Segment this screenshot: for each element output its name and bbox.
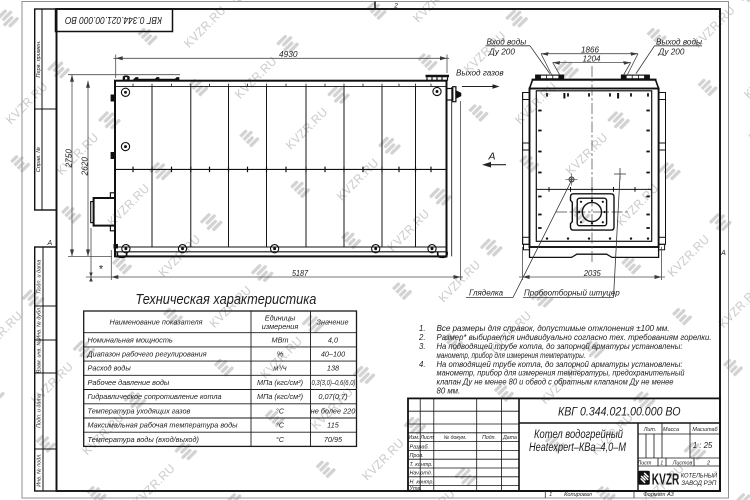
svg-text:Техническая характеристика: Техническая характеристика (135, 292, 316, 308)
svg-text:МПа (кгс/см²): МПа (кгс/см²) (257, 378, 303, 387)
svg-text:КОТЕЛЬНЫЙ: КОТЕЛЬНЫЙ (681, 470, 718, 479)
svg-text:Гляделка: Гляделка (469, 289, 504, 298)
svg-text:Утв.: Утв. (409, 486, 422, 492)
svg-text:Ду 200: Ду 200 (488, 48, 515, 57)
svg-text:2035: 2035 (583, 269, 601, 278)
svg-text:Инв. № подл.: Инв. № подл. (36, 453, 42, 486)
svg-text:А: А (46, 240, 52, 247)
svg-text:°С: °С (276, 406, 285, 415)
svg-text:Рабочее давление воды: Рабочее давление воды (88, 378, 170, 387)
svg-text:Размер* выбирается индивидуаль: Размер* выбирается индивидуально согласн… (437, 333, 712, 342)
svg-text:Температура воды (вход/выход): Температура воды (вход/выход) (88, 435, 199, 444)
svg-text:Перв. примен.: Перв. примен. (36, 40, 42, 77)
svg-text:Выход газов: Выход газов (456, 69, 504, 78)
svg-text:1866: 1866 (581, 46, 600, 55)
svg-text:КВГ 0.344.021.00.000 ВО: КВГ 0.344.021.00.000 ВО (65, 14, 162, 25)
svg-text:Копировал: Копировал (564, 492, 593, 498)
svg-text:°С: °С (276, 435, 285, 444)
svg-text:1.: 1. (419, 324, 426, 333)
svg-text:Максимальная рабочая температу: Максимальная рабочая температура воды (88, 421, 239, 430)
svg-text:Лист: Лист (637, 460, 652, 466)
svg-text:2750: 2750 (64, 149, 73, 169)
svg-text:Номинальная мощность: Номинальная мощность (88, 335, 173, 344)
svg-text:Диапазон рабочего регулировани: Диапазон рабочего регулирования (87, 350, 207, 359)
svg-text:2620: 2620 (80, 157, 89, 177)
svg-text:№ докум.: № докум. (444, 435, 467, 441)
svg-text:Вход воды: Вход воды (487, 37, 527, 46)
svg-text:На подводящей трубе котла, до: На подводящей трубе котла, до запорной а… (437, 342, 683, 351)
svg-text:А: А (487, 151, 495, 163)
svg-text:не более 220: не более 220 (311, 406, 356, 415)
svg-text:А: А (720, 250, 726, 257)
svg-text:%: % (277, 350, 284, 359)
svg-text:1: 1 (660, 460, 663, 466)
svg-text:Разраб.: Разраб. (410, 444, 430, 450)
svg-text:Подп.: Подп. (482, 435, 496, 441)
svg-text:клапан Ду не менее 80 и обвод: клапан Ду не менее 80 и обвод с обратным… (437, 378, 675, 387)
svg-text:1204: 1204 (583, 54, 602, 63)
svg-text:4.: 4. (419, 360, 426, 369)
svg-text:Листов: Листов (672, 460, 693, 466)
svg-text:Масса: Масса (663, 427, 679, 433)
svg-text:Лист: Лист (419, 435, 434, 441)
svg-text:Нач.отд.: Нач.отд. (410, 471, 433, 477)
svg-text:2.: 2. (418, 333, 426, 342)
svg-text:измерения: измерения (262, 322, 299, 331)
svg-text:Пров.: Пров. (410, 453, 424, 459)
svg-text:4,0: 4,0 (328, 335, 338, 344)
svg-text:40–100: 40–100 (321, 350, 345, 359)
svg-text:2: 2 (706, 460, 710, 466)
svg-text:МВт: МВт (271, 335, 288, 344)
svg-text:Котел водогрейный: Котел водогрейный (534, 429, 623, 441)
svg-text:Наименование показателя: Наименование показателя (109, 318, 202, 327)
svg-text:Изм.: Изм. (408, 435, 419, 441)
svg-text:0,3(3,0)–0,6(6,0): 0,3(3,0)–0,6(6,0) (312, 380, 356, 387)
svg-text:70/95: 70/95 (324, 435, 343, 444)
svg-text:Справ. №: Справ. № (36, 147, 42, 172)
svg-text:3.: 3. (419, 342, 426, 351)
svg-text:Лит.: Лит. (643, 427, 657, 433)
svg-text:Н. контр.: Н. контр. (410, 479, 434, 485)
svg-text:На отводящей трубе котла, до з: На отводящей трубе котла, до запорной ар… (437, 360, 683, 369)
svg-text:Т. контр.: Т. контр. (410, 462, 433, 468)
svg-text:Значение: Значение (316, 318, 348, 327)
svg-text:манометр, прибор для измерения: манометр, прибор для измерения температу… (437, 369, 686, 378)
svg-text:KVZR: KVZR (652, 471, 680, 488)
svg-text:Heatexpert–КВа–4,0–М: Heatexpert–КВа–4,0–М (529, 442, 626, 454)
svg-text:Взам. инв. №: Взам. инв. № (36, 340, 42, 374)
svg-text:Дата: Дата (502, 435, 517, 441)
svg-text:м³/ч: м³/ч (273, 364, 286, 373)
svg-text:Расход воды: Расход воды (88, 364, 132, 373)
svg-text:КВГ 0.344.021.00.000 ВО: КВГ 0.344.021.00.000 ВО (558, 404, 681, 418)
svg-text:1 : 25: 1 : 25 (693, 441, 713, 450)
svg-text:Выход воды: Выход воды (656, 37, 702, 46)
svg-text:138: 138 (327, 364, 340, 373)
svg-text:Инв. № дубл.: Инв. № дубл. (36, 306, 42, 339)
svg-text:°С: °С (276, 421, 285, 430)
svg-text:4930: 4930 (279, 50, 298, 59)
svg-text:Пробоотборный штуцер: Пробоотборный штуцер (524, 289, 620, 298)
svg-text:Все размеры для справок, допус: Все размеры для справок, допустимые откл… (437, 324, 670, 333)
svg-text:80 мм.: 80 мм. (437, 387, 461, 396)
svg-text:Формат А3: Формат А3 (643, 492, 674, 498)
svg-text:МПа (кгс/см²): МПа (кгс/см²) (257, 392, 303, 401)
svg-text:Подп. и дата: Подп. и дата (36, 260, 42, 294)
svg-text:Масштаб: Масштаб (692, 427, 718, 433)
svg-text:ЗАВОД РЭП: ЗАВОД РЭП (681, 480, 716, 487)
svg-text:0,07(0,7): 0,07(0,7) (318, 392, 347, 401)
svg-text:Ду 200: Ду 200 (658, 48, 685, 57)
svg-text:115: 115 (327, 421, 340, 430)
svg-text:манометр, прибор для измерения: манометр, прибор для измерения температу… (437, 351, 586, 360)
svg-text:1: 1 (549, 492, 552, 498)
svg-text:Подп. и дата: Подп. и дата (36, 394, 42, 428)
svg-text:Температура уходящих газов: Температура уходящих газов (88, 406, 191, 415)
svg-text:Гидравлическое сопротивление к: Гидравлическое сопротивление котла (88, 392, 222, 401)
svg-text:5187: 5187 (292, 269, 308, 278)
svg-text:*: * (98, 264, 103, 276)
